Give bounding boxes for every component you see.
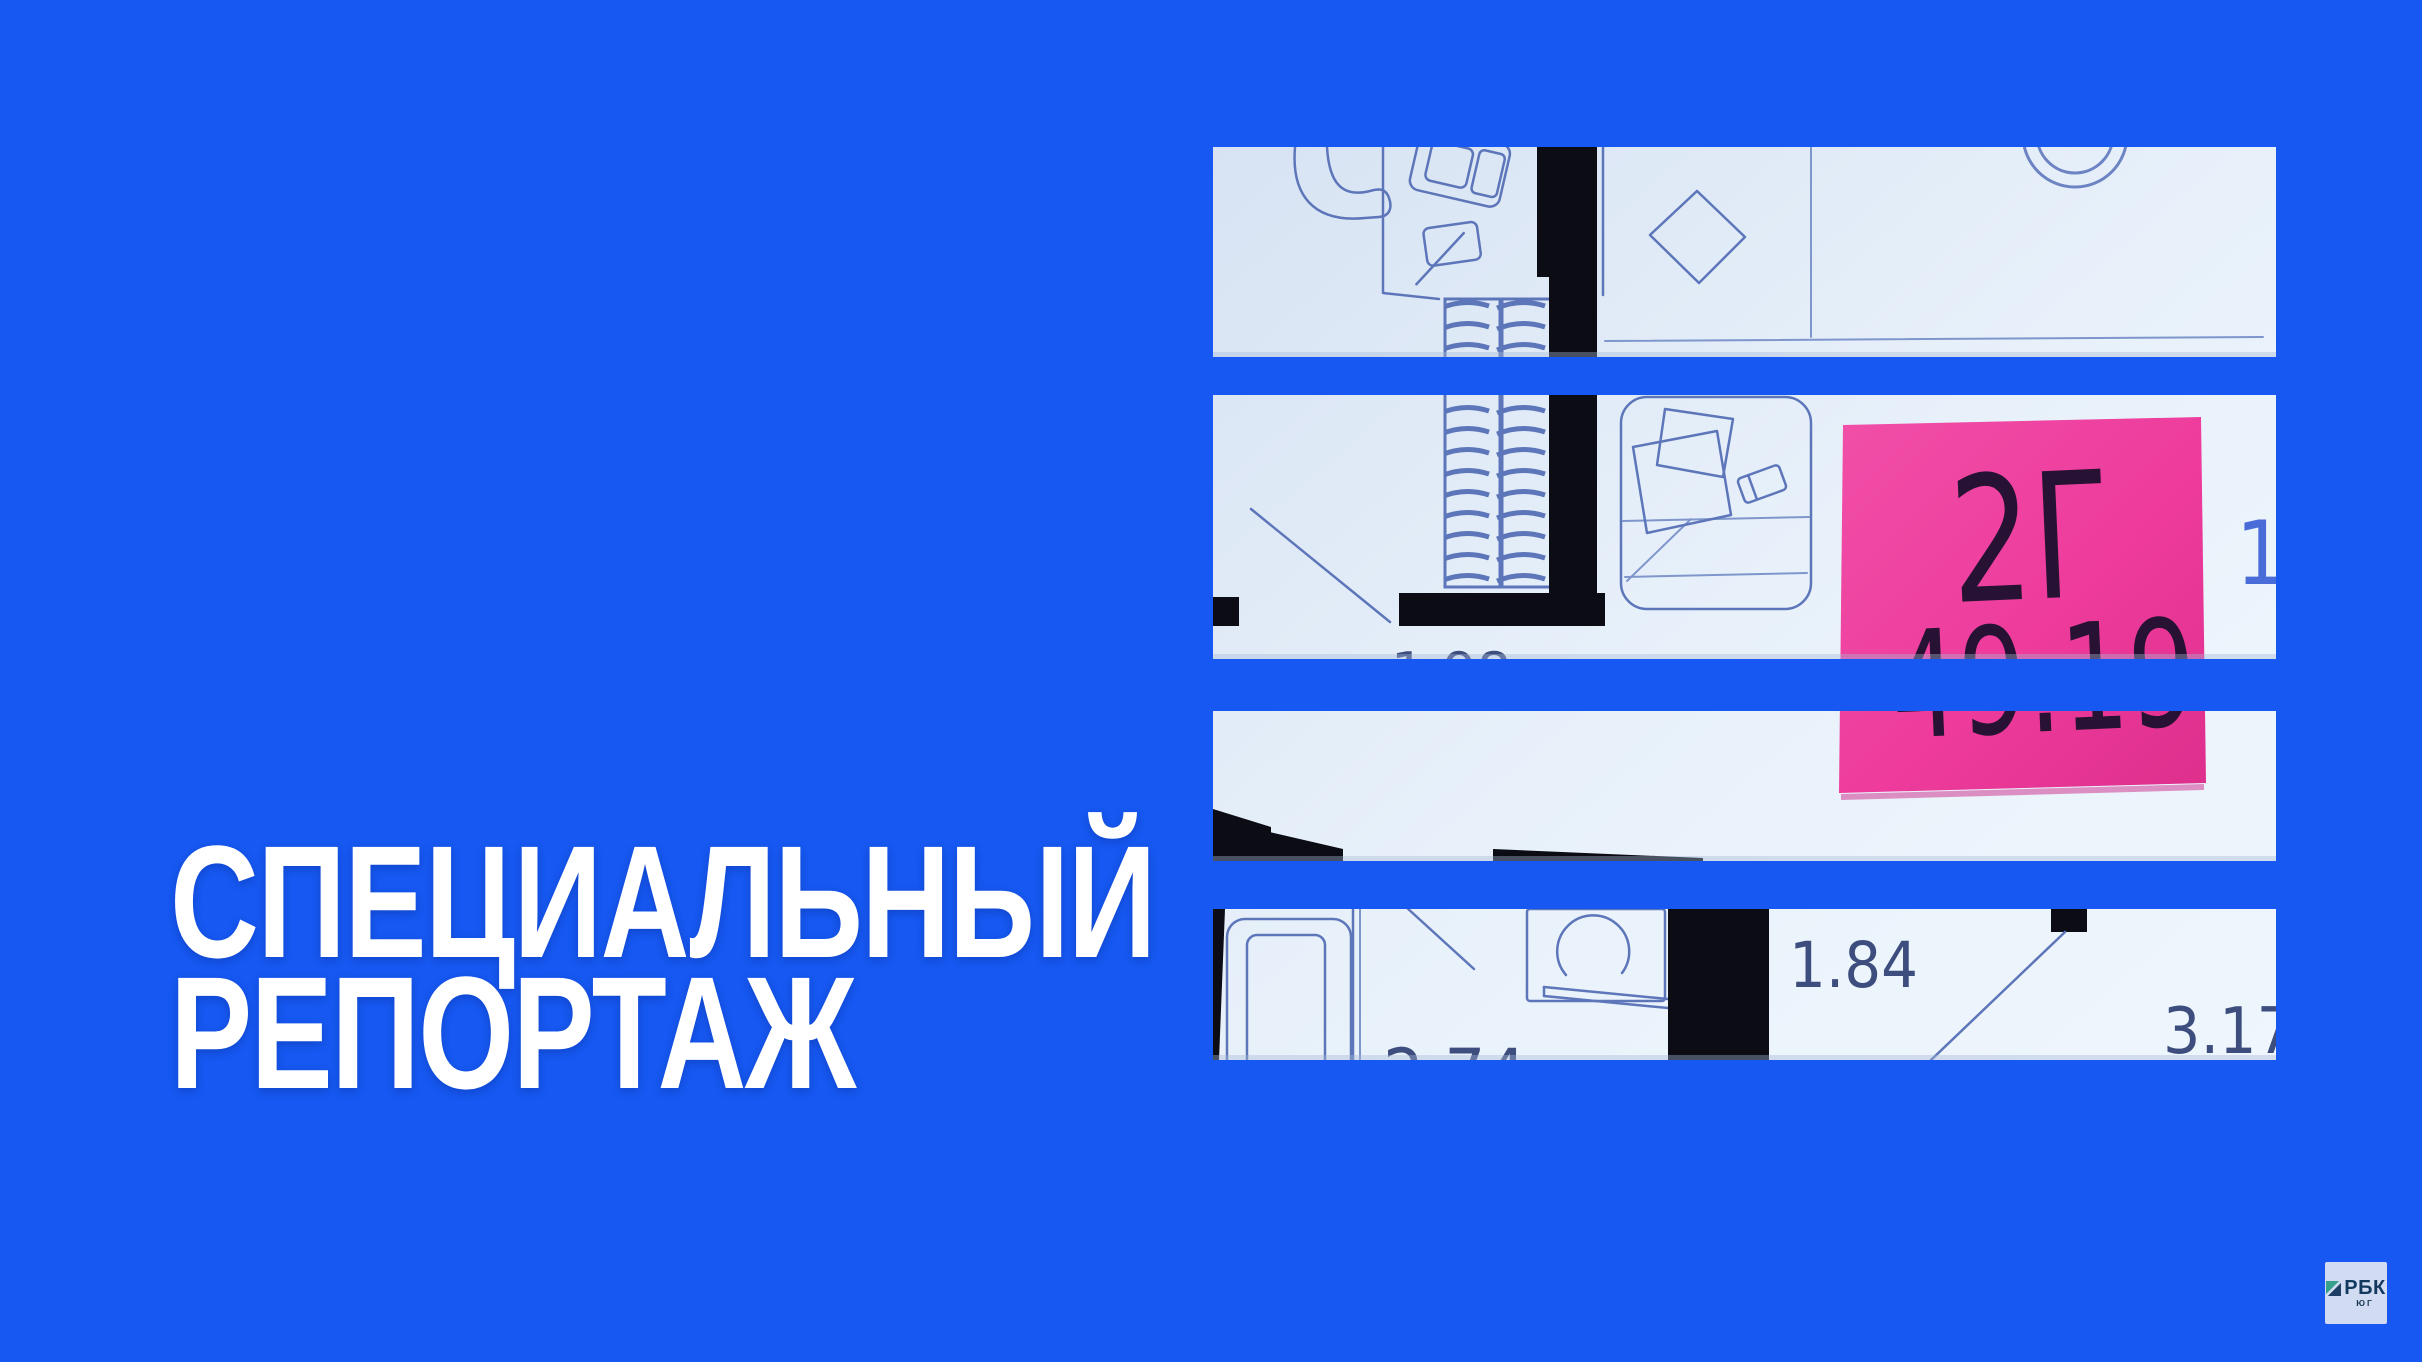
shelf-hatch-right <box>1502 299 1557 587</box>
wall-segment <box>1549 273 1597 593</box>
strip-edge-shade <box>1213 1055 2276 1060</box>
rbc-logo-badge: РБК ЮГ <box>2325 1262 2387 1324</box>
shelf-hatch-left <box>1445 299 1500 587</box>
strip-gap-bar <box>1213 357 2276 395</box>
dimension-label: 1.84 <box>1789 930 1918 1003</box>
rbc-region-text: ЮГ <box>2356 1299 2374 1308</box>
strip-edge-shade <box>1213 654 2276 659</box>
rbc-logo-row: РБК <box>2326 1278 2385 1298</box>
program-title: СПЕЦИАЛЬНЫЙ РЕПОРТАЖ <box>170 836 1155 1098</box>
wall-segment <box>1399 593 1605 626</box>
wall-segment <box>1213 597 1239 626</box>
strip-edge-shade <box>1213 352 2276 357</box>
strip-gap-bar <box>1213 659 2276 711</box>
partial-dimension-digit: 1 <box>2236 502 2276 605</box>
floorplan-illustration: 1.98 2Г 49.19 1 <box>1213 147 2276 1060</box>
strip-gap-bar <box>1213 861 2276 909</box>
broadcast-frame: СПЕЦИАЛЬНЫЙ РЕПОРТАЖ <box>0 0 2422 1362</box>
wall-segment <box>2051 909 2087 932</box>
rbc-brand-text: РБК <box>2344 1278 2385 1298</box>
dimension-label: 3.17 <box>2163 994 2276 1060</box>
rbc-logo-icon <box>2326 1281 2341 1296</box>
wall-segment <box>1668 909 1769 1060</box>
floorplan-photo-strips: 1.98 2Г 49.19 1 <box>1213 147 2276 1060</box>
wall-segment <box>1537 147 1597 277</box>
strip-edge-shade <box>1213 856 2276 861</box>
